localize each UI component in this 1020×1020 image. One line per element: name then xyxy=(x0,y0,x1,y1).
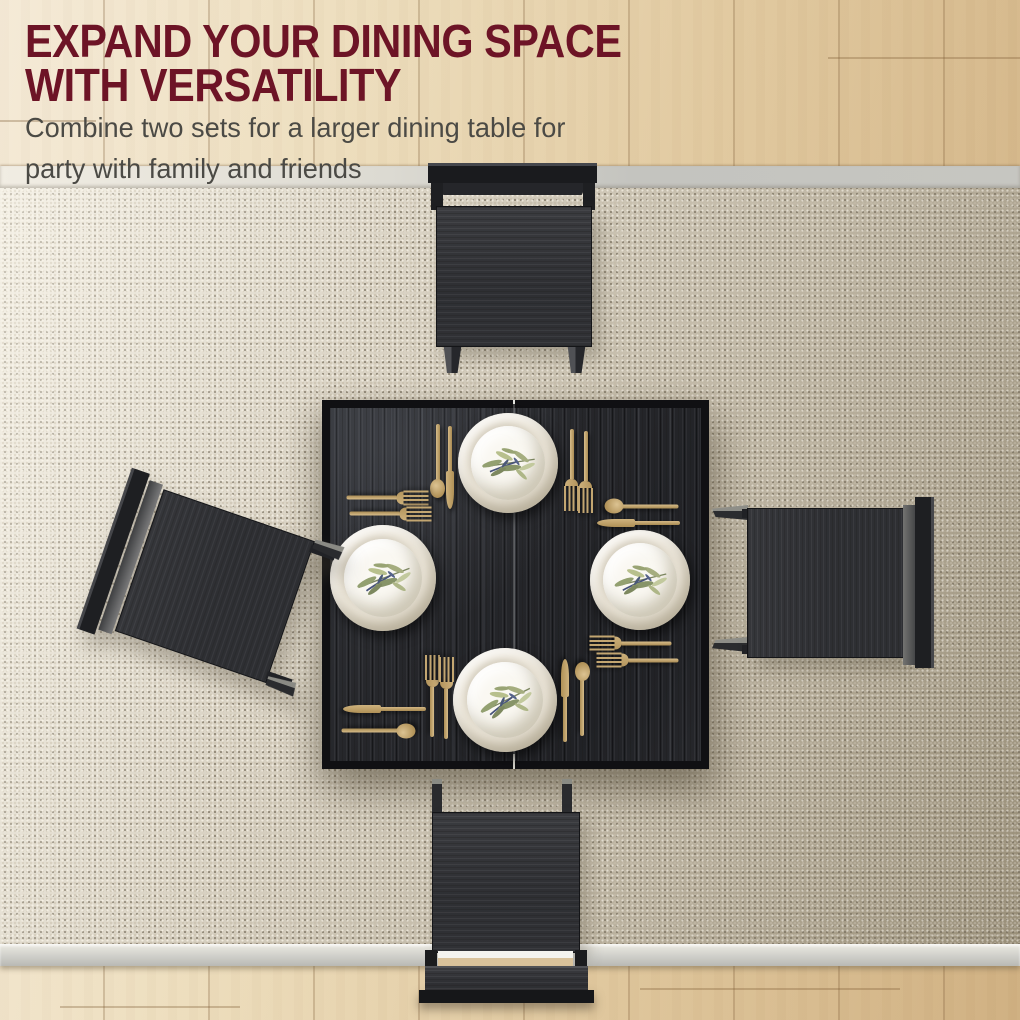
knife-handle xyxy=(634,521,680,526)
fork-tines xyxy=(407,507,432,522)
fork-tines xyxy=(597,653,622,668)
plate-south xyxy=(453,648,557,752)
fork-handle xyxy=(350,512,400,516)
chair-south-backrest-bar xyxy=(425,966,588,992)
gold-knife xyxy=(446,426,454,510)
fork-handle xyxy=(445,689,449,739)
chair-south-leg-left xyxy=(432,779,442,815)
gold-spoon xyxy=(603,499,679,514)
plate-east xyxy=(590,530,690,630)
spoon-bowl xyxy=(605,499,624,514)
floor-plank-joint xyxy=(828,57,1020,59)
fork-bridge xyxy=(440,682,453,689)
chair-north-backrest-bar xyxy=(428,163,597,183)
olive-sprig-graphic xyxy=(463,665,548,734)
gold-fork xyxy=(564,429,579,511)
fork-bridge xyxy=(426,680,439,687)
chair-south-seat xyxy=(432,812,580,953)
chair-north-seat xyxy=(436,206,592,347)
gold-fork xyxy=(578,431,593,513)
gold-fork xyxy=(590,636,672,651)
olive-sprig-graphic xyxy=(342,546,424,609)
gold-spoon xyxy=(430,424,445,500)
fork-tines xyxy=(439,657,454,682)
fork-handle xyxy=(622,641,672,645)
knife-blade xyxy=(597,519,635,527)
spoon-handle xyxy=(342,729,399,733)
gold-fork xyxy=(597,653,679,668)
headline: EXPAND YOUR DINING SPACEWITH VERSATILITY xyxy=(25,20,622,107)
gold-fork xyxy=(439,657,454,739)
chair-south-leg-right xyxy=(562,779,572,815)
fork-handle xyxy=(431,687,435,737)
fork-handle xyxy=(629,658,679,662)
knife-handle xyxy=(380,707,426,712)
knife-handle xyxy=(563,696,568,742)
subheadline-line2: party with family and friends xyxy=(25,153,362,184)
product-photo-scene: EXPAND YOUR DINING SPACEWITH VERSATILITY… xyxy=(0,0,1020,1020)
gold-spoon xyxy=(342,724,418,739)
fork-bridge xyxy=(615,637,622,650)
gold-fork xyxy=(350,507,432,522)
chair-south-backrest-base xyxy=(419,990,594,1003)
gold-fork xyxy=(425,655,440,737)
spoon-bowl xyxy=(430,479,445,498)
fork-handle xyxy=(347,496,397,500)
plate-north xyxy=(458,413,558,513)
gold-spoon xyxy=(575,660,590,736)
gold-knife xyxy=(596,519,680,527)
gold-knife xyxy=(561,658,569,742)
spoon-bowl xyxy=(575,662,590,681)
fork-tines xyxy=(578,488,593,513)
fork-tines xyxy=(590,636,615,651)
fork-handle xyxy=(584,431,588,481)
headline-line2: WITH VERSATILITY xyxy=(25,59,401,111)
fork-tines xyxy=(564,486,579,511)
fork-tines xyxy=(404,491,429,506)
spoon-handle xyxy=(622,504,679,508)
fork-tines xyxy=(425,655,440,680)
chair-east-backrest-bar xyxy=(915,497,934,668)
knife-blade xyxy=(561,659,569,697)
fork-bridge xyxy=(622,654,629,667)
knife-handle xyxy=(448,426,453,472)
knife-blade xyxy=(446,471,454,509)
floor-plank-joint xyxy=(60,1006,240,1008)
gold-knife xyxy=(342,705,426,713)
fork-bridge xyxy=(579,481,592,488)
spoon-handle xyxy=(436,424,440,481)
subheadline-line1: Combine two sets for a larger dining tab… xyxy=(25,112,565,143)
gold-fork xyxy=(347,491,429,506)
floor-plank-joint xyxy=(640,988,900,990)
spoon-handle xyxy=(581,679,585,736)
olive-sprig-graphic xyxy=(602,550,679,610)
fork-bridge xyxy=(400,508,407,521)
chair-north-backrest-face xyxy=(434,183,591,195)
olive-sprig-graphic xyxy=(467,430,548,496)
fork-handle xyxy=(570,429,574,479)
fork-bridge xyxy=(397,492,404,505)
fork-bridge xyxy=(565,479,578,486)
chair-east-seat xyxy=(747,508,906,658)
spoon-bowl xyxy=(397,724,416,739)
knife-blade xyxy=(343,705,381,713)
